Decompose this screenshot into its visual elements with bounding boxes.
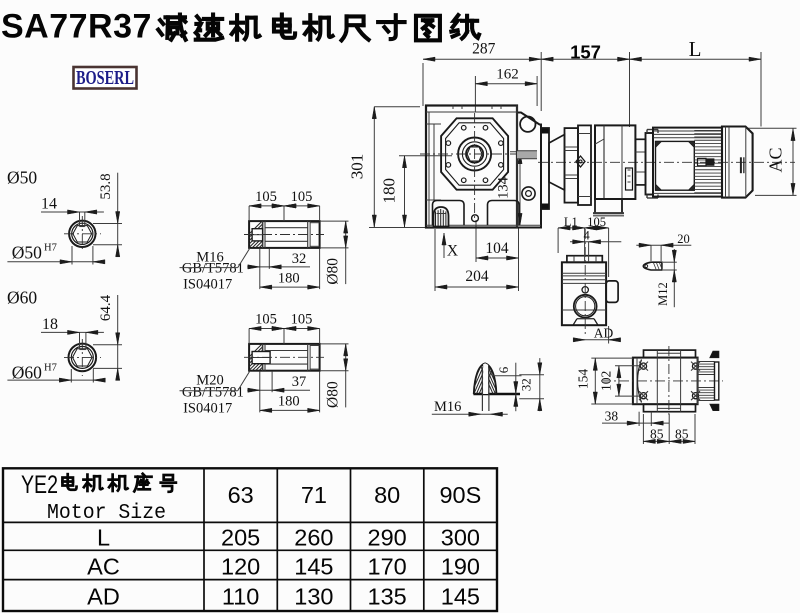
svg-text:105: 105 [587, 215, 606, 229]
svg-text:20: 20 [677, 232, 690, 246]
svg-text:145: 145 [441, 584, 480, 610]
svg-text:287: 287 [472, 41, 496, 58]
svg-text:Ø50: Ø50 [12, 243, 42, 263]
svg-text:105: 105 [255, 189, 277, 205]
svg-text:134: 134 [496, 176, 512, 199]
svg-text:63: 63 [228, 482, 254, 508]
svg-text:105: 105 [255, 312, 277, 328]
svg-text:IS04017: IS04017 [183, 401, 232, 417]
svg-text:Ø50: Ø50 [7, 168, 37, 188]
svg-text:32: 32 [292, 251, 307, 267]
svg-text:L1: L1 [564, 215, 578, 229]
svg-text:290: 290 [368, 525, 407, 551]
svg-text:135: 135 [368, 584, 407, 610]
svg-text:105: 105 [291, 189, 313, 205]
svg-text:180: 180 [278, 394, 300, 410]
svg-text:85: 85 [675, 426, 689, 441]
svg-text:104: 104 [485, 240, 509, 257]
svg-text:Ø80: Ø80 [325, 258, 342, 285]
svg-text:205: 205 [221, 525, 260, 551]
svg-text:BOSERL: BOSERL [76, 67, 134, 89]
svg-text:120: 120 [221, 554, 260, 580]
svg-text:Ø80: Ø80 [325, 381, 342, 408]
svg-text:H7: H7 [44, 243, 57, 254]
svg-text:102: 102 [599, 371, 614, 391]
svg-text:80: 80 [374, 482, 400, 508]
svg-text:105: 105 [291, 312, 313, 328]
svg-text:18: 18 [42, 316, 58, 333]
svg-text:110: 110 [222, 584, 259, 610]
svg-text:37: 37 [292, 374, 307, 390]
svg-text:M16: M16 [434, 399, 461, 415]
svg-text:M12: M12 [656, 282, 670, 306]
svg-text:YE2: YE2 [21, 471, 58, 499]
svg-text:X: X [447, 243, 458, 260]
svg-text:6: 6 [496, 366, 511, 373]
svg-text:GB/T5781: GB/T5781 [182, 385, 244, 401]
svg-text:L: L [97, 525, 110, 551]
svg-text:Motor Size: Motor Size [47, 502, 166, 525]
svg-text:300: 300 [441, 525, 480, 551]
svg-text:64.4: 64.4 [98, 294, 114, 321]
svg-text:Ø60: Ø60 [7, 288, 37, 308]
svg-text:204: 204 [465, 268, 489, 285]
svg-text:H7: H7 [44, 363, 57, 374]
svg-text:157: 157 [570, 42, 601, 63]
svg-text:GB/T5781: GB/T5781 [182, 261, 244, 277]
svg-text:85: 85 [650, 426, 664, 441]
svg-text:4: 4 [583, 229, 590, 243]
svg-text:AD: AD [87, 584, 120, 610]
svg-text:IS04017: IS04017 [183, 277, 232, 293]
svg-text:Ø60: Ø60 [12, 363, 42, 383]
svg-text:SA77R37: SA77R37 [1, 8, 152, 46]
svg-text:AD: AD [594, 326, 614, 341]
svg-text:L: L [689, 37, 702, 61]
svg-text:90S: 90S [439, 482, 481, 508]
svg-text:32: 32 [518, 378, 533, 391]
svg-text:162: 162 [496, 67, 519, 83]
svg-text:190: 190 [441, 554, 480, 580]
svg-text:AC: AC [87, 554, 120, 580]
svg-text:AC: AC [766, 147, 786, 172]
svg-text:180: 180 [278, 270, 300, 286]
svg-text:301: 301 [348, 154, 367, 180]
svg-text:180: 180 [380, 178, 399, 204]
svg-text:53.8: 53.8 [98, 173, 114, 199]
svg-text:170: 170 [368, 554, 407, 580]
svg-text:14: 14 [41, 196, 57, 213]
svg-text:154: 154 [576, 369, 591, 390]
svg-text:145: 145 [294, 554, 333, 580]
svg-text:38: 38 [605, 409, 619, 424]
svg-text:71: 71 [301, 482, 327, 508]
svg-text:260: 260 [294, 525, 333, 551]
svg-text:130: 130 [294, 584, 333, 610]
